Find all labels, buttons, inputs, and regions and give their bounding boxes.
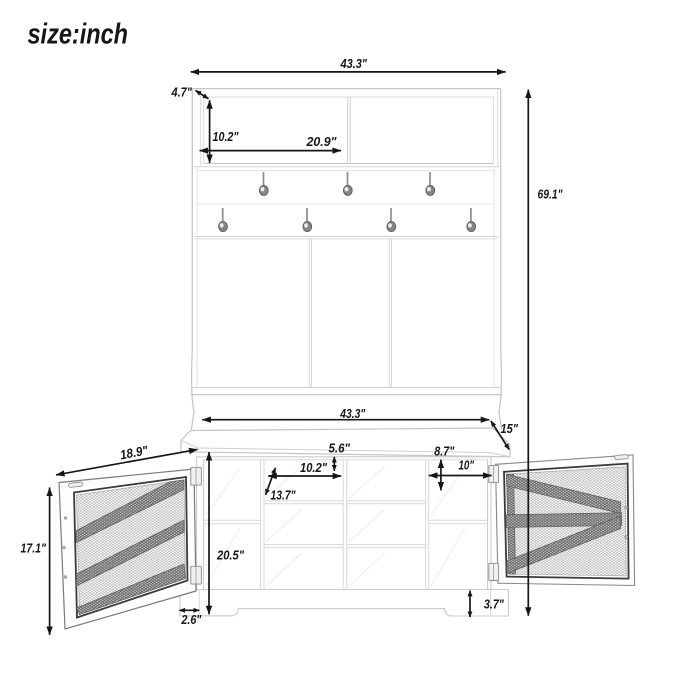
svg-text:3.7": 3.7" <box>484 596 505 611</box>
svg-text:69.1": 69.1" <box>538 187 564 202</box>
svg-text:43.3": 43.3" <box>340 56 368 71</box>
svg-text:8.7": 8.7" <box>434 444 455 459</box>
svg-text:13.7": 13.7" <box>271 487 297 502</box>
svg-text:10.2": 10.2" <box>300 460 328 475</box>
svg-text:2.6": 2.6" <box>181 612 203 627</box>
svg-text:4.7": 4.7" <box>171 85 193 100</box>
svg-text:5.6": 5.6" <box>329 440 351 455</box>
svg-text:size:inch: size:inch <box>28 19 129 51</box>
svg-text:17.1": 17.1" <box>21 540 47 555</box>
svg-text:15": 15" <box>501 421 519 436</box>
svg-text:10.2": 10.2" <box>213 129 240 144</box>
svg-text:10": 10" <box>459 457 475 472</box>
svg-text:20.5": 20.5" <box>216 547 245 562</box>
svg-text:43.3": 43.3" <box>340 406 366 421</box>
svg-text:20.9": 20.9" <box>306 134 338 149</box>
